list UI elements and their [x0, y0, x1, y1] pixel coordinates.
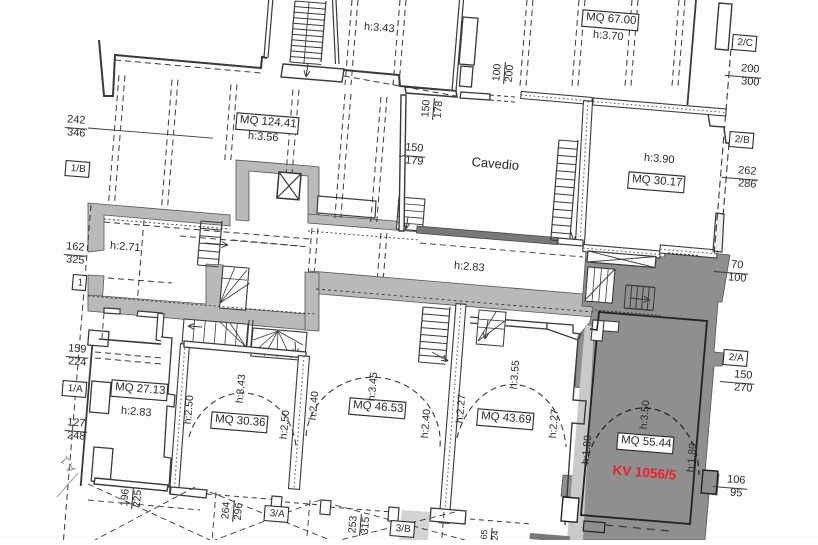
svg-text:h:2.40: h:2.40	[307, 391, 321, 421]
svg-text:h:1.80: h:1.80	[685, 443, 699, 473]
svg-text:264: 264	[219, 501, 232, 520]
svg-text:h:1.80: h:1.80	[580, 435, 594, 465]
svg-text:262: 262	[738, 164, 757, 177]
svg-text:h:3.90: h:3.90	[644, 152, 675, 166]
svg-text:253: 253	[346, 515, 359, 534]
svg-text:196: 196	[118, 488, 131, 507]
svg-text:100: 100	[490, 63, 503, 82]
svg-text:150: 150	[405, 141, 424, 154]
svg-text:h:2.83: h:2.83	[121, 405, 152, 419]
svg-text:h:2.83: h:2.83	[454, 260, 485, 274]
svg-text:h:2.27: h:2.27	[547, 409, 561, 439]
svg-text:159: 159	[68, 342, 87, 355]
svg-text:65: 65	[479, 529, 490, 540]
svg-text:2/C: 2/C	[737, 37, 753, 49]
svg-text:162: 162	[66, 240, 85, 253]
svg-text:h:2.50: h:2.50	[278, 410, 292, 440]
svg-text:h:3.45: h:3.45	[366, 372, 380, 402]
svg-text:1/B: 1/B	[70, 163, 86, 175]
svg-text:h:2.50: h:2.50	[182, 395, 196, 425]
svg-text:h:3.56: h:3.56	[248, 130, 279, 144]
svg-text:150: 150	[419, 99, 432, 118]
svg-text:h:2.71: h:2.71	[110, 240, 141, 254]
svg-text:h:3.43: h:3.43	[234, 374, 248, 404]
svg-text:h:2.27: h:2.27	[454, 394, 468, 424]
svg-text:h:3.70: h:3.70	[593, 29, 624, 43]
svg-text:3/A: 3/A	[269, 508, 285, 520]
svg-text:3/B: 3/B	[395, 523, 411, 535]
svg-text:2/B: 2/B	[734, 134, 750, 146]
svg-text:1/A: 1/A	[67, 383, 83, 395]
svg-text:127: 127	[67, 416, 86, 429]
svg-text:200: 200	[741, 62, 760, 75]
svg-text:h:3.50: h:3.50	[638, 400, 652, 430]
svg-text:h:3.43: h:3.43	[364, 21, 395, 35]
svg-text:106: 106	[727, 473, 746, 486]
svg-text:70: 70	[731, 259, 744, 272]
svg-text:150: 150	[734, 368, 753, 381]
svg-text:h:2.40: h:2.40	[419, 409, 433, 439]
svg-text:h:3.55: h:3.55	[508, 360, 522, 390]
svg-text:2/A: 2/A	[728, 352, 744, 364]
svg-text:242: 242	[67, 113, 86, 126]
